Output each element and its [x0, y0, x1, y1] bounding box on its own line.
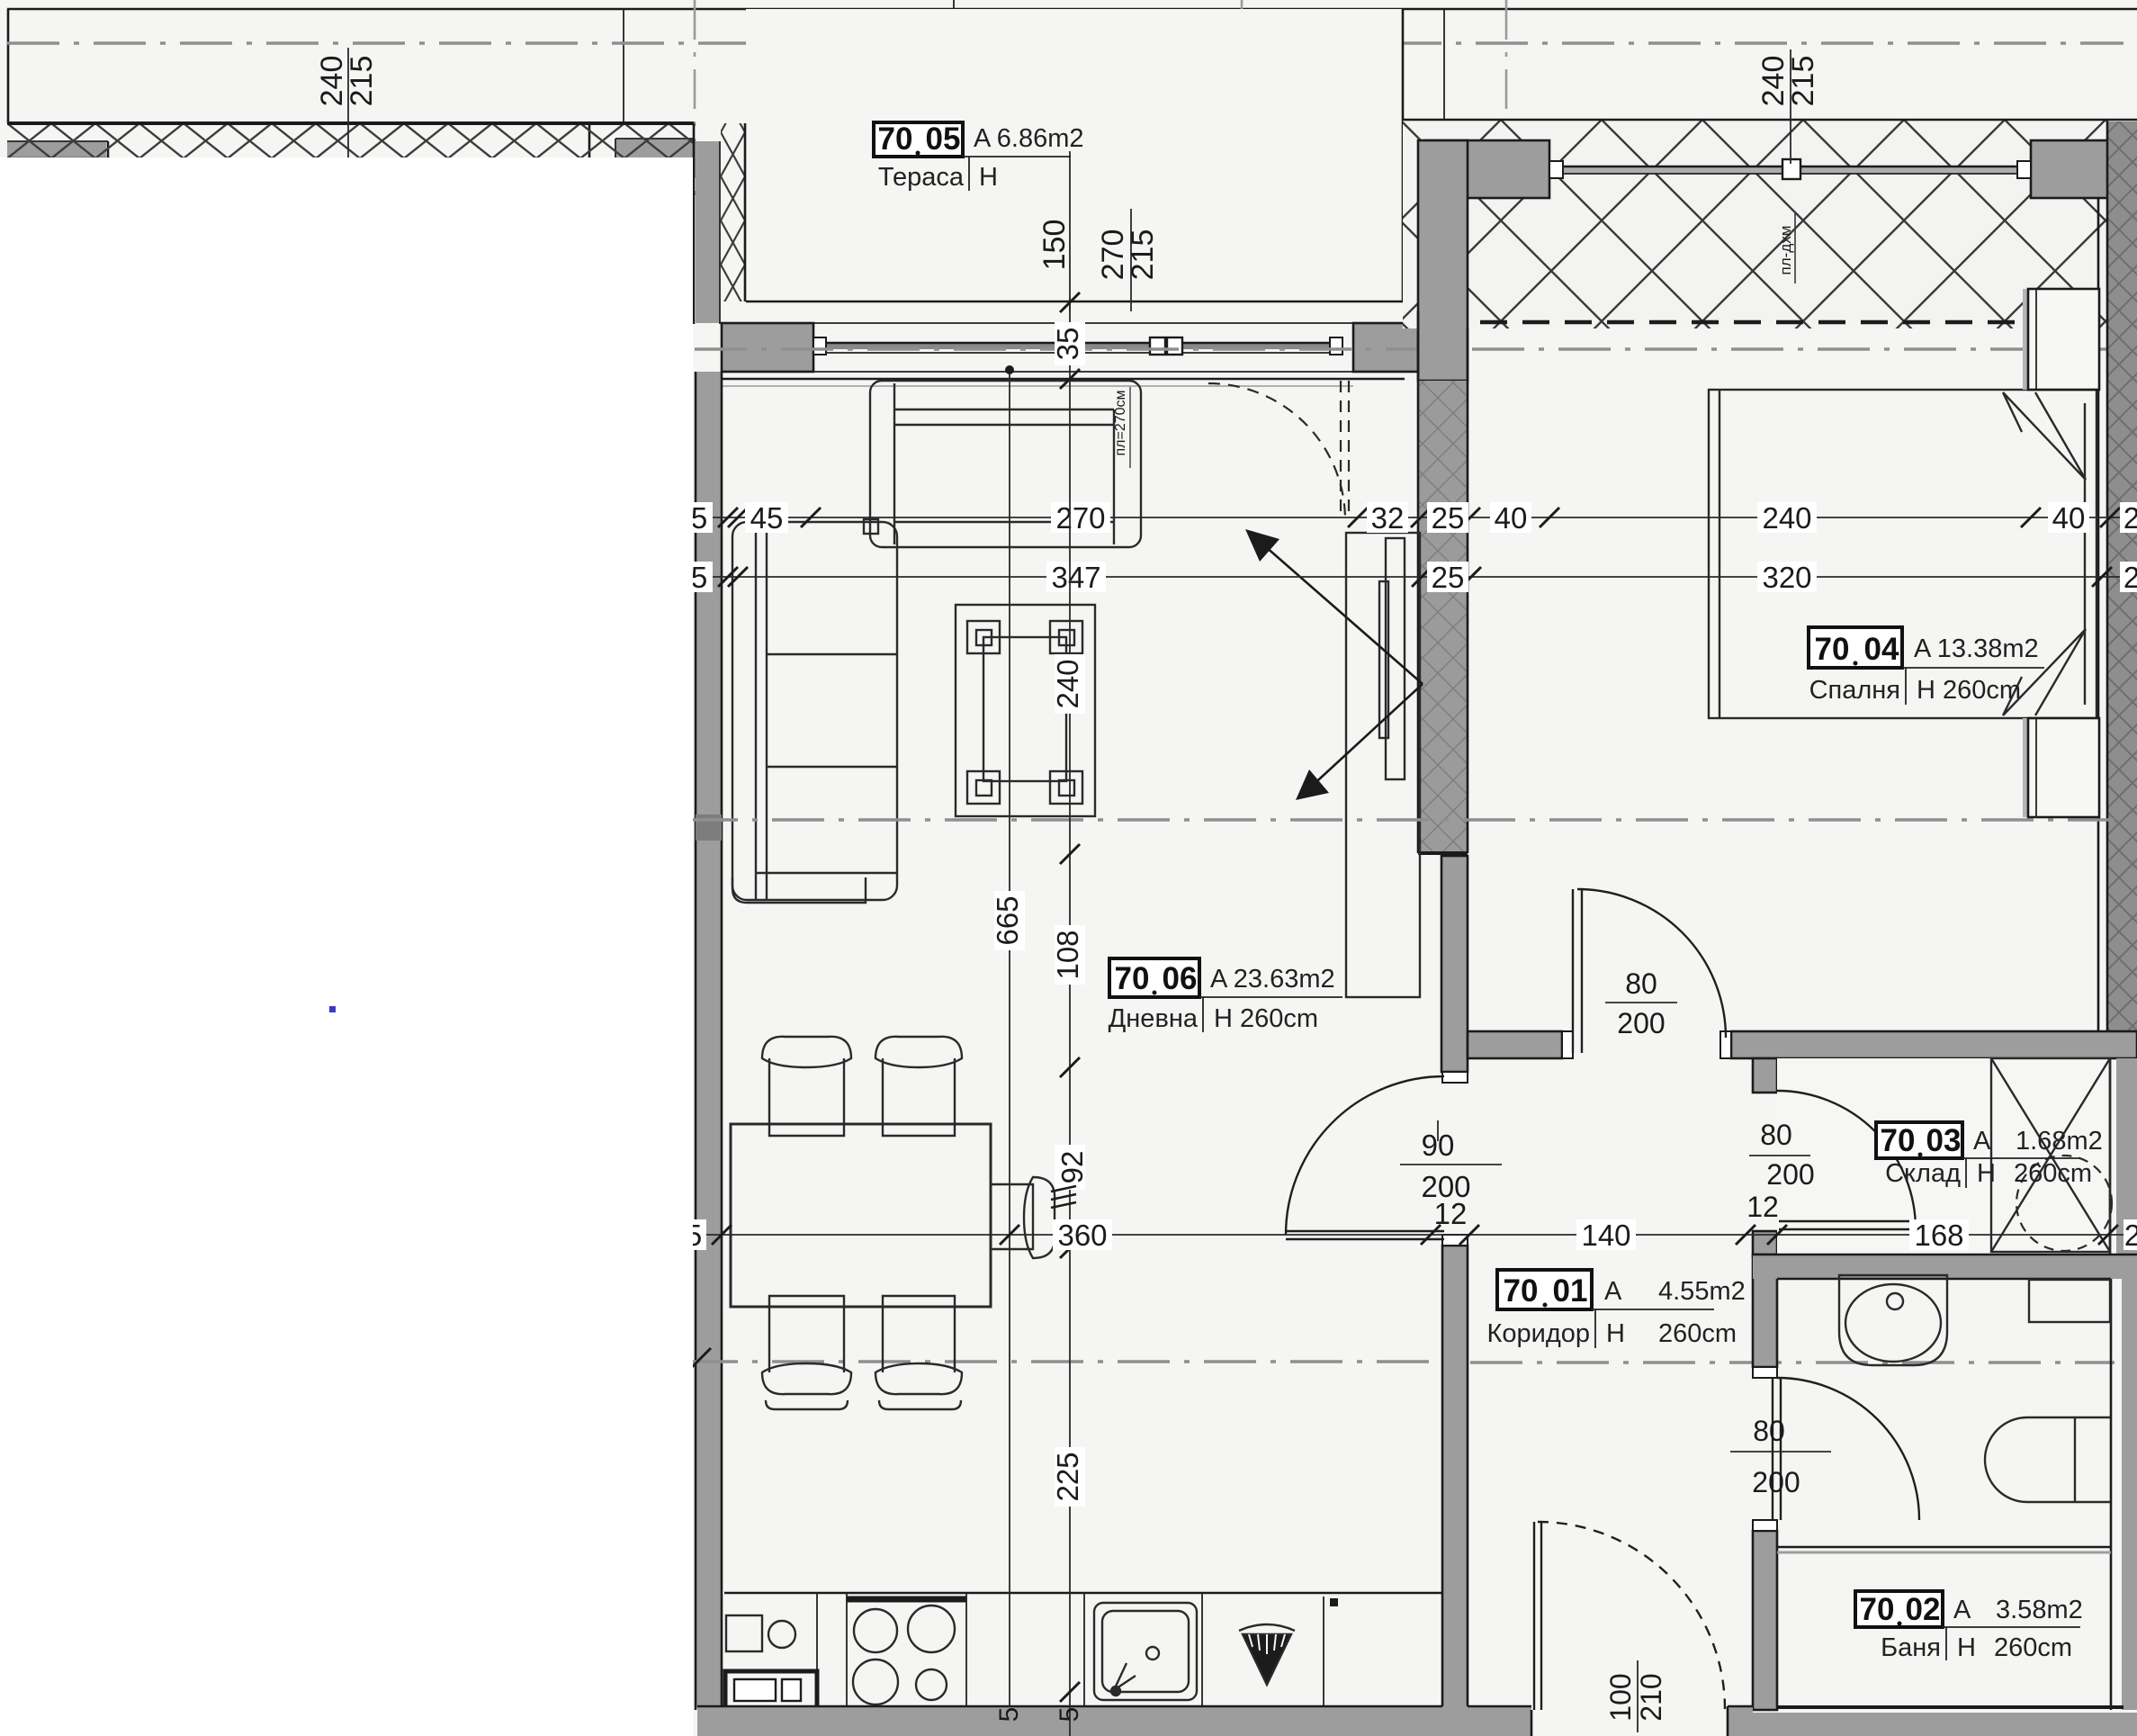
svg-text:H 260cm: H 260cm: [1214, 1004, 1318, 1033]
svg-text:H: H: [1957, 1633, 1976, 1662]
svg-text:108: 108: [1051, 930, 1084, 979]
svg-text:A: A: [1973, 1127, 1991, 1156]
svg-text:70: 70: [1860, 1592, 1895, 1627]
svg-text:Баня: Баня: [1881, 1633, 1941, 1662]
svg-text:70: 70: [878, 121, 913, 157]
svg-text:5: 5: [1055, 1707, 1084, 1723]
svg-text:240: 240: [1051, 659, 1084, 708]
svg-text:665: 665: [991, 895, 1024, 945]
svg-text:215: 215: [1126, 229, 1160, 281]
svg-text:260cm: 260cm: [1994, 1633, 2072, 1662]
svg-text:05: 05: [926, 121, 961, 157]
svg-text:225: 225: [1051, 1452, 1084, 1501]
svg-text:270: 270: [1055, 501, 1105, 535]
svg-text:70: 70: [1881, 1123, 1916, 1158]
svg-text:Коридор: Коридор: [1486, 1319, 1590, 1348]
svg-text:3.58m2: 3.58m2: [1996, 1596, 2083, 1624]
svg-text:200: 200: [1752, 1466, 1800, 1498]
svg-text:100: 100: [1604, 1673, 1637, 1721]
svg-text:01: 01: [1553, 1273, 1588, 1309]
svg-text:210: 210: [1635, 1673, 1667, 1721]
svg-text:215: 215: [345, 56, 379, 107]
svg-text:80: 80: [1753, 1415, 1785, 1447]
svg-text:40: 40: [2052, 501, 2086, 535]
svg-text:80: 80: [1760, 1119, 1792, 1151]
svg-text:04: 04: [1864, 632, 1899, 667]
svg-text:A: A: [1604, 1277, 1622, 1306]
svg-text:12: 12: [1746, 1191, 1779, 1223]
svg-text:32: 32: [1371, 501, 1405, 535]
svg-text:25: 25: [1432, 501, 1465, 535]
svg-text:35: 35: [1051, 328, 1084, 361]
svg-text:320: 320: [1762, 561, 1811, 594]
svg-text:A 6.86m2: A 6.86m2: [974, 124, 1084, 153]
svg-text:H: H: [1606, 1319, 1625, 1348]
svg-text:12: 12: [1434, 1197, 1468, 1230]
svg-text:240: 240: [1762, 501, 1811, 535]
svg-text:200: 200: [1766, 1158, 1814, 1191]
svg-text:200: 200: [1617, 1007, 1665, 1039]
svg-text:150: 150: [1037, 220, 1072, 271]
svg-text:H: H: [979, 163, 998, 192]
svg-text:25: 25: [1432, 561, 1465, 594]
svg-text:260cm: 260cm: [1658, 1319, 1737, 1348]
svg-text:70: 70: [1504, 1273, 1539, 1309]
svg-text:03: 03: [1926, 1123, 1962, 1158]
svg-text:2: 2: [2124, 1219, 2137, 1252]
svg-text:260cm: 260cm: [2014, 1159, 2092, 1188]
svg-text:06: 06: [1163, 961, 1198, 996]
svg-text:1.68m2: 1.68m2: [2016, 1127, 2103, 1156]
svg-text:80: 80: [1625, 967, 1657, 1000]
svg-text:70: 70: [1115, 961, 1150, 996]
svg-text:Тераса: Тераса: [878, 163, 965, 192]
svg-text:A 13.38m2: A 13.38m2: [1914, 634, 2039, 663]
svg-text:2: 2: [2124, 561, 2137, 594]
svg-text:70: 70: [1815, 632, 1850, 667]
svg-text:Дневна: Дневна: [1109, 1004, 1199, 1033]
svg-text:5: 5: [691, 561, 707, 594]
svg-text:пл=270см: пл=270см: [1113, 390, 1128, 455]
svg-text:140: 140: [1581, 1219, 1630, 1252]
svg-text:40: 40: [1495, 501, 1528, 535]
svg-text:360: 360: [1057, 1219, 1107, 1252]
svg-text:215: 215: [1786, 56, 1820, 107]
svg-text:H: H: [1977, 1159, 1996, 1188]
svg-text:Склад: Склад: [1885, 1159, 1961, 1188]
svg-text:пл-дхм: пл-дхм: [1777, 226, 1794, 275]
svg-text:2: 2: [2124, 501, 2137, 535]
svg-text:5: 5: [691, 501, 707, 535]
svg-text:347: 347: [1051, 561, 1100, 594]
svg-text:Спалня: Спалня: [1809, 676, 1900, 705]
svg-text:A 23.63m2: A 23.63m2: [1210, 965, 1335, 994]
svg-text:H 260cm: H 260cm: [1917, 676, 2021, 705]
svg-text:45: 45: [750, 501, 784, 535]
svg-text:5: 5: [994, 1707, 1024, 1723]
svg-text:02: 02: [1906, 1592, 1941, 1627]
svg-text:4.55m2: 4.55m2: [1658, 1277, 1746, 1306]
svg-text:92: 92: [1055, 1151, 1089, 1184]
svg-text:A: A: [1953, 1596, 1971, 1624]
svg-text:168: 168: [1914, 1219, 1963, 1252]
